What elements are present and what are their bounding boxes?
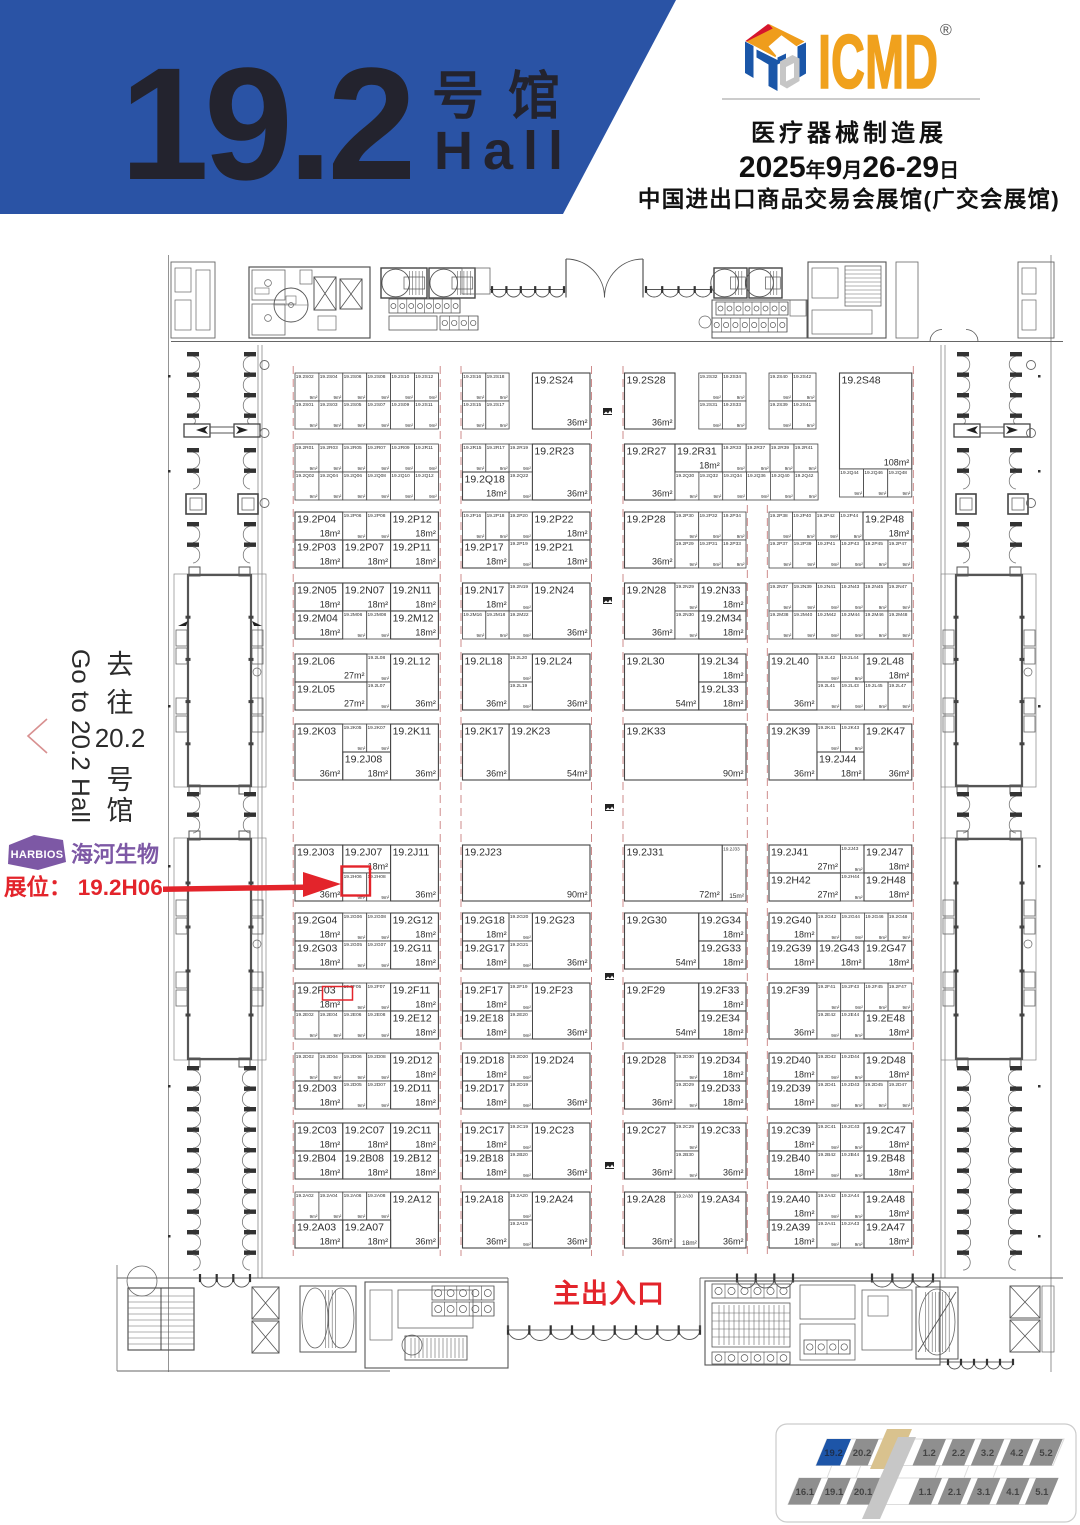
svg-text:19.2S18: 19.2S18 [487, 374, 505, 380]
svg-text:18m²: 18m² [368, 1168, 389, 1178]
svg-text:19.2R01: 19.2R01 [296, 445, 314, 451]
svg-text:19.2P33: 19.2P33 [723, 541, 741, 547]
svg-text:19.2G43: 19.2G43 [819, 943, 859, 955]
svg-text:9m²: 9m² [737, 494, 745, 499]
svg-text:9m²: 9m² [381, 466, 389, 471]
svg-text:9m²: 9m² [357, 935, 365, 940]
svg-text:9m²: 9m² [903, 633, 911, 638]
svg-text:19.2P45: 19.2P45 [865, 541, 883, 547]
svg-text:19.2D08: 19.2D08 [368, 1054, 386, 1060]
svg-text:9m²: 9m² [879, 633, 887, 638]
svg-text:9m²: 9m² [855, 1173, 863, 1178]
svg-text:19.2P04: 19.2P04 [297, 514, 336, 526]
svg-text:9m²: 9m² [855, 1145, 863, 1150]
svg-text:9m²: 9m² [523, 704, 531, 709]
svg-text:19.2P39: 19.2P39 [794, 541, 812, 547]
svg-text:9m²: 9m² [831, 676, 839, 681]
svg-text:9m²: 9m² [903, 1103, 911, 1108]
svg-text:19.2R31: 19.2R31 [677, 446, 717, 458]
svg-text:19.2K05: 19.2K05 [344, 725, 362, 731]
svg-text:18m²: 18m² [841, 769, 862, 779]
svg-text:19.2P07: 19.2P07 [345, 542, 384, 554]
svg-text:19.2B18: 19.2B18 [465, 1153, 504, 1165]
svg-text:9m²: 9m² [831, 935, 839, 940]
svg-text:19.2A19: 19.2A19 [510, 1221, 528, 1227]
svg-text:19.2R15: 19.2R15 [463, 445, 481, 451]
svg-text:19.2E44: 19.2E44 [841, 1012, 859, 1018]
svg-text:19.2P37: 19.2P37 [770, 541, 788, 547]
svg-text:18m²: 18m² [486, 489, 507, 499]
svg-text:19.2P29: 19.2P29 [676, 541, 694, 547]
svg-text:19.2R05: 19.2R05 [344, 445, 362, 451]
svg-text:9m²: 9m² [809, 494, 817, 499]
svg-text:36m²: 36m² [415, 699, 436, 709]
svg-text:19.2L19: 19.2L19 [510, 683, 528, 689]
svg-text:9m²: 9m² [831, 633, 839, 638]
svg-text:18m²: 18m² [567, 557, 588, 567]
svg-text:19.2D19: 19.2D19 [510, 1082, 528, 1088]
svg-text:9m²: 9m² [690, 1173, 698, 1178]
svg-text:19.2C33: 19.2C33 [701, 1125, 741, 1137]
svg-text:9m²: 9m² [689, 562, 697, 567]
svg-text:18m²: 18m² [486, 958, 507, 968]
svg-text:19.2G34: 19.2G34 [701, 915, 741, 927]
svg-text:19.2S10: 19.2S10 [391, 374, 409, 380]
svg-text:19.2M18: 19.2M18 [487, 612, 506, 618]
svg-text:18m²: 18m² [723, 1098, 744, 1108]
svg-text:9m²: 9m² [783, 423, 791, 428]
svg-text:9m²: 9m² [855, 746, 863, 751]
svg-text:9m²: 9m² [737, 562, 745, 567]
svg-text:19.2R11: 19.2R11 [415, 445, 433, 451]
svg-text:9m²: 9m² [310, 395, 318, 400]
svg-text:9m²: 9m² [357, 963, 365, 968]
svg-text:19.2D24: 19.2D24 [534, 1055, 574, 1067]
svg-text:19.2L45: 19.2L45 [865, 683, 883, 689]
svg-text:19.2C47: 19.2C47 [866, 1125, 906, 1137]
svg-text:16.1: 16.1 [796, 1487, 815, 1498]
svg-text:19.2B30: 19.2B30 [676, 1152, 694, 1158]
svg-text:19.2J08: 19.2J08 [345, 754, 383, 766]
svg-text:19.2D05: 19.2D05 [344, 1082, 362, 1088]
svg-text:18m²: 18m² [723, 958, 744, 968]
svg-text:19.2A47: 19.2A47 [866, 1222, 905, 1234]
svg-text:9m²: 9m² [878, 491, 886, 496]
svg-text:19.2D11: 19.2D11 [393, 1083, 432, 1095]
svg-text:19.2Q18: 19.2Q18 [465, 474, 505, 486]
svg-text:5.2: 5.2 [1039, 1448, 1052, 1459]
svg-text:36m²: 36m² [486, 769, 507, 779]
svg-text:18m²: 18m² [486, 1070, 507, 1080]
svg-text:19.2N11: 19.2N11 [393, 585, 432, 597]
svg-text:9m²: 9m² [879, 1103, 887, 1108]
svg-text:9m²: 9m² [381, 1075, 389, 1080]
svg-text:19.2L12: 19.2L12 [393, 656, 431, 668]
svg-text:18m²: 18m² [723, 628, 744, 638]
svg-text:36m²: 36m² [652, 557, 673, 567]
svg-text:18m²: 18m² [723, 671, 744, 681]
svg-text:18m²: 18m² [320, 930, 341, 940]
svg-text:36m²: 36m² [415, 769, 436, 779]
svg-text:9m²: 9m² [381, 746, 389, 751]
svg-text:19.2P40: 19.2P40 [793, 513, 811, 519]
svg-text:18m²: 18m² [889, 1070, 910, 1080]
svg-text:19.2R33: 19.2R33 [723, 445, 741, 451]
svg-text:9m²: 9m² [689, 534, 697, 539]
svg-text:19.2K43: 19.2K43 [841, 725, 859, 731]
svg-text:9m²: 9m² [807, 633, 815, 638]
svg-text:19.2R39: 19.2R39 [771, 445, 789, 451]
svg-text:18m²: 18m² [415, 1098, 436, 1108]
svg-text:19.2F41: 19.2F41 [818, 984, 836, 990]
svg-text:19.2G03: 19.2G03 [297, 943, 337, 955]
svg-text:19.2B20: 19.2B20 [510, 1152, 528, 1158]
svg-text:9m²: 9m² [785, 494, 793, 499]
svg-text:19.2P11: 19.2P11 [393, 542, 431, 554]
svg-text:19.2P16: 19.2P16 [463, 513, 481, 519]
svg-text:19.2S24: 19.2S24 [534, 375, 573, 387]
svg-text:18m²: 18m² [320, 958, 341, 968]
svg-text:19.2C29: 19.2C29 [676, 1124, 694, 1130]
svg-text:19.2J31: 19.2J31 [627, 847, 665, 859]
svg-text:36m²: 36m² [652, 418, 673, 428]
svg-text:19.2C07: 19.2C07 [345, 1125, 385, 1137]
svg-text:19.2M44: 19.2M44 [841, 612, 860, 618]
svg-text:19.2S01: 19.2S01 [296, 402, 314, 408]
svg-text:19.2G40: 19.2G40 [771, 915, 811, 927]
svg-text:36m²: 36m² [567, 958, 588, 968]
svg-text:9m²: 9m² [405, 466, 413, 471]
svg-text:18m²: 18m² [486, 1028, 507, 1038]
svg-text:36m²: 36m² [320, 890, 341, 900]
svg-text:36m²: 36m² [567, 489, 588, 499]
svg-text:19.2R27: 19.2R27 [627, 446, 667, 458]
svg-text:36m²: 36m² [652, 489, 673, 499]
svg-text:号: 号 [107, 765, 134, 795]
svg-text:18m²: 18m² [415, 930, 436, 940]
svg-text:9m²: 9m² [783, 534, 791, 539]
svg-text:36m²: 36m² [889, 769, 910, 779]
svg-text:19.2L34: 19.2L34 [701, 656, 739, 668]
svg-text:9m²: 9m² [807, 605, 815, 610]
svg-text:9m²: 9m² [381, 633, 389, 638]
svg-text:19.2A30: 19.2A30 [676, 1194, 694, 1199]
svg-text:9m²: 9m² [523, 1033, 531, 1038]
svg-text:19.2Q08: 19.2Q08 [368, 473, 387, 479]
svg-text:19.2G12: 19.2G12 [393, 915, 433, 927]
svg-text:19.2K07: 19.2K07 [368, 725, 386, 731]
svg-text:9m²: 9m² [381, 494, 389, 499]
svg-text:54m²: 54m² [676, 958, 697, 968]
svg-text:去: 去 [107, 650, 134, 680]
svg-text:19.2A06: 19.2A06 [344, 1193, 362, 1199]
svg-text:19.2Q44: 19.2Q44 [840, 470, 859, 476]
svg-text:医疗器械制造展: 医疗器械制造展 [751, 119, 947, 147]
svg-text:1.2: 1.2 [923, 1448, 936, 1459]
svg-text:9m²: 9m² [381, 963, 389, 968]
svg-text:54m²: 54m² [676, 699, 697, 709]
svg-text:9m²: 9m² [903, 704, 911, 709]
svg-text:18m²: 18m² [320, 529, 341, 539]
svg-text:36m²: 36m² [567, 1237, 588, 1247]
svg-text:36m²: 36m² [794, 769, 815, 779]
svg-text:9m²: 9m² [831, 746, 839, 751]
svg-text:18m²: 18m² [889, 529, 910, 539]
svg-text:9m²: 9m² [500, 466, 508, 471]
svg-text:19.2L33: 19.2L33 [701, 684, 739, 696]
svg-text:19.2S06: 19.2S06 [344, 374, 362, 380]
svg-text:18m²: 18m² [320, 1168, 341, 1178]
svg-text:19.2E12: 19.2E12 [393, 1013, 432, 1025]
svg-text:19.2B44: 19.2B44 [841, 1152, 859, 1158]
svg-text:19.2G08: 19.2G08 [368, 914, 387, 920]
svg-text:19.2P03: 19.2P03 [297, 542, 336, 554]
svg-text:19.2E06: 19.2E06 [344, 1012, 362, 1018]
svg-text:9m²: 9m² [523, 562, 531, 567]
svg-text:9m²: 9m² [831, 704, 839, 709]
svg-text:19.2D39: 19.2D39 [771, 1083, 811, 1095]
svg-text:9m²: 9m² [855, 895, 863, 900]
svg-text:9m²: 9m² [357, 466, 365, 471]
svg-text:18m²: 18m² [889, 1140, 910, 1150]
svg-text:18m²: 18m² [723, 930, 744, 940]
svg-text:15m²: 15m² [729, 893, 745, 900]
svg-text:19.2A08: 19.2A08 [368, 1193, 386, 1199]
svg-text:9m²: 9m² [334, 1075, 342, 1080]
svg-text:19.2A41: 19.2A41 [818, 1221, 836, 1227]
svg-text:9m²: 9m² [357, 746, 365, 751]
svg-text:9m²: 9m² [879, 935, 887, 940]
svg-text:19.2P32: 19.2P32 [700, 513, 718, 519]
svg-text:9m²: 9m² [855, 1242, 863, 1247]
svg-text:9m²: 9m² [831, 1075, 839, 1080]
svg-text:19.2P38: 19.2P38 [770, 513, 788, 519]
svg-text:9m²: 9m² [713, 562, 721, 567]
svg-text:19.2D30: 19.2D30 [676, 1054, 694, 1060]
svg-text:9m²: 9m² [854, 534, 862, 539]
svg-text:19.2F39: 19.2F39 [771, 985, 810, 997]
svg-text:9m²: 9m² [381, 1214, 389, 1219]
svg-text:9m²: 9m² [831, 1033, 839, 1038]
svg-text:18m²: 18m² [368, 600, 389, 610]
svg-text:9m²: 9m² [310, 494, 318, 499]
svg-text:19.2S40: 19.2S40 [770, 374, 788, 380]
svg-text:9m²: 9m² [381, 1005, 389, 1010]
svg-text:9m²: 9m² [690, 1075, 698, 1080]
svg-text:9m²: 9m² [713, 494, 721, 499]
svg-text:27m²: 27m² [817, 890, 838, 900]
svg-text:19.2A48: 19.2A48 [866, 1194, 905, 1206]
svg-text:19.2F29: 19.2F29 [627, 985, 666, 997]
svg-text:9m²: 9m² [690, 605, 698, 610]
svg-text:18m²: 18m² [723, 600, 744, 610]
svg-text:19.2L07: 19.2L07 [368, 683, 386, 689]
svg-text:19.2G47: 19.2G47 [866, 943, 906, 955]
svg-text:9m²: 9m² [334, 1214, 342, 1219]
svg-text:9m²: 9m² [523, 1173, 531, 1178]
svg-text:36m²: 36m² [652, 1168, 673, 1178]
svg-text:9m²: 9m² [500, 423, 508, 428]
svg-text:19.2M12: 19.2M12 [393, 613, 434, 625]
svg-text:19.2A07: 19.2A07 [345, 1222, 384, 1234]
svg-text:19.2N47: 19.2N47 [889, 584, 907, 590]
svg-text:19.2B40: 19.2B40 [771, 1153, 810, 1165]
svg-text:19.2D12: 19.2D12 [393, 1055, 433, 1067]
svg-text:19.2D42: 19.2D42 [818, 1054, 836, 1060]
svg-text:9m²: 9m² [523, 1005, 531, 1010]
svg-text:19.2Q04: 19.2Q04 [320, 473, 339, 479]
svg-text:19.2J23: 19.2J23 [465, 847, 503, 859]
svg-text:19.2P22: 19.2P22 [534, 514, 573, 526]
svg-text:27m²: 27m² [344, 671, 365, 681]
svg-text:18m²: 18m² [415, 1168, 436, 1178]
svg-text:19.2M40: 19.2M40 [794, 612, 813, 618]
svg-text:3.2: 3.2 [981, 1448, 994, 1459]
svg-text:36m²: 36m² [723, 1168, 744, 1178]
svg-text:19.2S08: 19.2S08 [368, 374, 386, 380]
svg-text:19.2S15: 19.2S15 [463, 402, 481, 408]
svg-text:19.2L06: 19.2L06 [297, 656, 335, 668]
svg-text:19.2G18: 19.2G18 [465, 915, 505, 927]
svg-text:9m²: 9m² [381, 935, 389, 940]
svg-text:9m²: 9m² [855, 605, 863, 610]
svg-text:Go to 20.2 Hall: Go to 20.2 Hall [66, 649, 94, 823]
svg-text:18m²: 18m² [415, 1070, 436, 1080]
svg-text:9m²: 9m² [831, 1242, 839, 1247]
svg-text:36m²: 36m² [486, 699, 507, 709]
svg-text:19.2P30: 19.2P30 [676, 513, 694, 519]
svg-text:9m²: 9m² [523, 605, 531, 610]
svg-text:19.2S31: 19.2S31 [700, 402, 718, 408]
svg-text:9m²: 9m² [357, 633, 365, 638]
svg-text:19.2S07: 19.2S07 [368, 402, 386, 408]
svg-text:9m²: 9m² [429, 494, 437, 499]
svg-text:9m²: 9m² [879, 562, 887, 567]
svg-text:19.2R17: 19.2R17 [487, 445, 505, 451]
svg-text:19.2Q02: 19.2Q02 [296, 473, 315, 479]
svg-text:19.2L20: 19.2L20 [510, 655, 528, 661]
svg-text:9m²: 9m² [523, 1103, 531, 1108]
svg-text:19.2A02: 19.2A02 [296, 1193, 314, 1199]
svg-text:9m²: 9m² [879, 704, 887, 709]
svg-text:HARBIOS: HARBIOS [11, 849, 64, 861]
svg-text:18m²: 18m² [486, 600, 507, 610]
svg-text:19.2J07: 19.2J07 [345, 847, 383, 859]
svg-text:19.2Q36: 19.2Q36 [747, 473, 766, 479]
svg-text:19.2E48: 19.2E48 [866, 1013, 905, 1025]
svg-text:19.2C19: 19.2C19 [510, 1124, 528, 1130]
svg-text:9m²: 9m² [477, 466, 485, 471]
svg-text:19.2L44: 19.2L44 [841, 655, 859, 661]
svg-text:9m²: 9m² [523, 676, 531, 681]
svg-text:19.2D29: 19.2D29 [676, 1082, 694, 1088]
svg-text:18m²: 18m² [486, 1000, 507, 1010]
svg-text:18m²: 18m² [794, 930, 815, 940]
svg-text:9m²: 9m² [831, 1173, 839, 1178]
svg-text:19.2A42: 19.2A42 [818, 1193, 836, 1199]
svg-text:19.2H44: 19.2H44 [841, 874, 859, 880]
svg-text:18m²: 18m² [368, 769, 389, 779]
svg-text:19.2D18: 19.2D18 [465, 1055, 505, 1067]
svg-text:19.2A03: 19.2A03 [297, 1222, 336, 1234]
svg-text:19.2Q42: 19.2Q42 [795, 473, 814, 479]
svg-text:19.2G42: 19.2G42 [818, 914, 837, 920]
svg-text:18m²: 18m² [794, 1237, 815, 1247]
svg-text:9m²: 9m² [500, 633, 508, 638]
svg-text:19.2M38: 19.2M38 [770, 612, 789, 618]
svg-text:9m²: 9m² [737, 466, 745, 471]
svg-text:9m²: 9m² [761, 466, 769, 471]
svg-text:9m²: 9m² [831, 1145, 839, 1150]
svg-text:19.2N30: 19.2N30 [676, 612, 694, 618]
svg-text:19.2G17: 19.2G17 [465, 943, 505, 955]
svg-text:36m²: 36m² [652, 1237, 673, 1247]
svg-text:9m²: 9m² [761, 494, 769, 499]
svg-text:19.2M04: 19.2M04 [297, 613, 338, 625]
svg-text:19.2G44: 19.2G44 [842, 914, 861, 920]
svg-text:19.2M34: 19.2M34 [701, 613, 742, 625]
svg-text:19.2L05: 19.2L05 [297, 684, 335, 696]
svg-text:20.1: 20.1 [854, 1487, 873, 1498]
svg-text:9m²: 9m² [690, 633, 698, 638]
svg-text:90m²: 90m² [567, 890, 588, 900]
svg-text:18m²: 18m² [889, 1168, 910, 1178]
svg-text:9m²: 9m² [855, 935, 863, 940]
svg-text:19.2J33: 19.2J33 [723, 847, 740, 852]
svg-text:9m²: 9m² [523, 963, 531, 968]
svg-text:9m²: 9m² [903, 1005, 911, 1010]
svg-text:19.2G48: 19.2G48 [889, 914, 908, 920]
svg-text:9m²: 9m² [310, 1075, 318, 1080]
svg-text:19.2G06: 19.2G06 [344, 914, 363, 920]
svg-text:9m²: 9m² [713, 423, 721, 428]
svg-text:19.2F11: 19.2F11 [393, 985, 431, 997]
svg-text:19.2L48: 19.2L48 [866, 656, 904, 668]
svg-text:9m²: 9m² [855, 1033, 863, 1038]
svg-text:3.1: 3.1 [977, 1487, 991, 1498]
svg-text:19.2B08: 19.2B08 [345, 1153, 384, 1165]
svg-text:19.2K11: 19.2K11 [393, 726, 431, 738]
svg-text:18m²: 18m² [368, 557, 389, 567]
svg-text:9m²: 9m² [807, 395, 815, 400]
svg-text:19.2A24: 19.2A24 [534, 1194, 573, 1206]
svg-text:19.2F23: 19.2F23 [534, 985, 573, 997]
svg-text:号馆: 号馆 [432, 68, 584, 126]
svg-text:19.2F47: 19.2F47 [889, 984, 907, 990]
svg-text:9m²: 9m² [831, 1214, 839, 1219]
svg-text:19.2P06: 19.2P06 [344, 513, 362, 519]
svg-text:19.2N17: 19.2N17 [465, 585, 505, 597]
svg-text:18m²: 18m² [699, 461, 720, 471]
svg-text:19.2E34: 19.2E34 [701, 1013, 740, 1025]
svg-text:19.2B42: 19.2B42 [818, 1152, 836, 1158]
svg-text:19.2S11: 19.2S11 [415, 402, 433, 408]
svg-text:19.2S02: 19.2S02 [296, 374, 314, 380]
svg-text:19.2D43: 19.2D43 [841, 1082, 859, 1088]
svg-text:9m²: 9m² [523, 1214, 531, 1219]
svg-text:19.2J43: 19.2J43 [841, 846, 858, 852]
svg-text:19.2S32: 19.2S32 [700, 374, 718, 380]
svg-text:19.2N28: 19.2N28 [627, 585, 667, 597]
svg-text:9m²: 9m² [381, 704, 389, 709]
svg-text:36m²: 36m² [567, 1168, 588, 1178]
svg-text:19.2L47: 19.2L47 [889, 683, 907, 689]
svg-text:19.2S42: 19.2S42 [793, 374, 811, 380]
svg-text:18m²: 18m² [486, 1168, 507, 1178]
svg-text:36m²: 36m² [567, 628, 588, 638]
svg-text:19.2A43: 19.2A43 [841, 1221, 859, 1227]
svg-text:ICMD: ICMD [818, 20, 938, 105]
